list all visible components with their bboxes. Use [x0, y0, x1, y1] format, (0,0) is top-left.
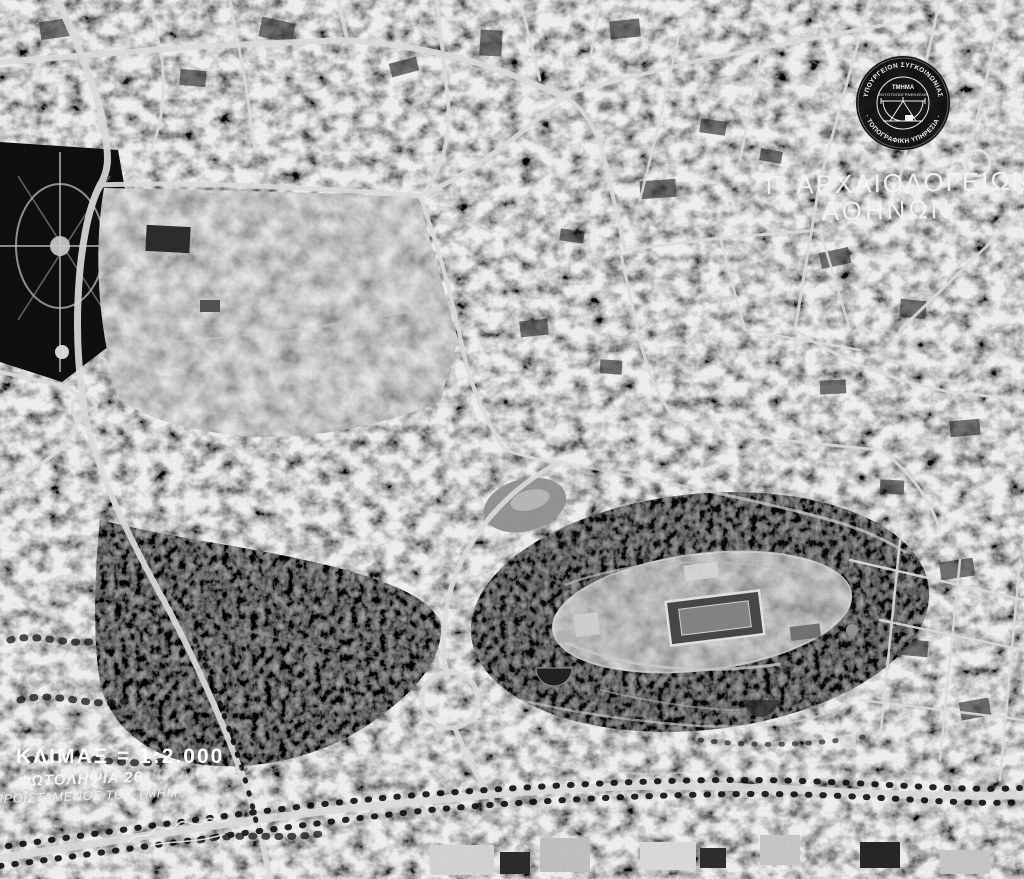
stamp-inner-line1: ΤΜΗΜΑ — [892, 85, 915, 91]
name-fragment: ΛΙΑΤΟΣ — [195, 801, 238, 813]
aerial-photo-canvas: ΥΠΟΥΡΓΕΙΟΝ ΣΥΓΚΟΙΝΩΝΙΑΣ · ΤΟΠΟΓΡΑΦΙΚΗ ΥΠ… — [0, 0, 1024, 879]
caption-line2: ΑΘΗΝΩΝ — [822, 194, 953, 226]
credit-label-faded: ΑΤΟΣ — [164, 783, 200, 798]
ministry-seal-stamp: ΥΠΟΥΡΓΕΙΟΝ ΣΥΓΚΟΙΝΩΝΙΑΣ · ΤΟΠΟΓΡΑΦΙΚΗ ΥΠ… — [856, 56, 950, 150]
aerial-photo-athens: ΥΠΟΥΡΓΕΙΟΝ ΣΥΓΚΟΙΝΩΝΙΑΣ · ΤΟΠΟΓΡΑΦΙΚΗ ΥΠ… — [0, 0, 1024, 879]
stamp-inner-line2: ΦΩΤΟΤΟΠΟΓΡΑΦΗΣΕΩΝ — [878, 92, 929, 97]
